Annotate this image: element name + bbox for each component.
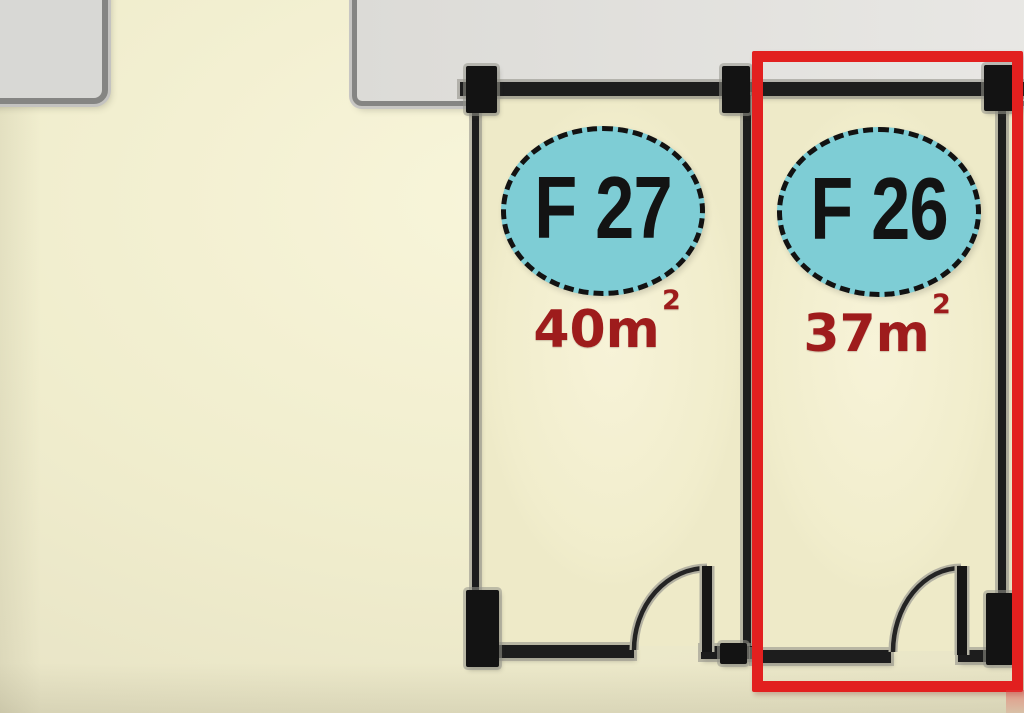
wall-bottom-f27-left (478, 645, 634, 658)
area-label-f27: 40m2 (496, 304, 716, 356)
unit-tag-f27[interactable]: F 27 (501, 126, 705, 296)
selection-highlight-box-f26 (752, 51, 1023, 692)
concrete-area-top-left (0, 0, 108, 104)
area-value-f27: 40m (533, 300, 660, 360)
column-bottom-divider (720, 643, 747, 664)
wall-left-f27 (472, 95, 479, 598)
column-bottom-left-f27 (466, 590, 499, 667)
column-top-left-f27 (466, 66, 497, 113)
selection-highlight-shadow (1006, 690, 1024, 713)
unit-code-f27: F 27 (534, 164, 672, 258)
wall-divider-f27-f26 (743, 95, 751, 655)
column-top-divider (722, 66, 750, 113)
floorplan-canvas: F 27 F 26 40m2 37m2 (0, 0, 1024, 713)
area-superscript-f27: 2 (662, 285, 681, 316)
